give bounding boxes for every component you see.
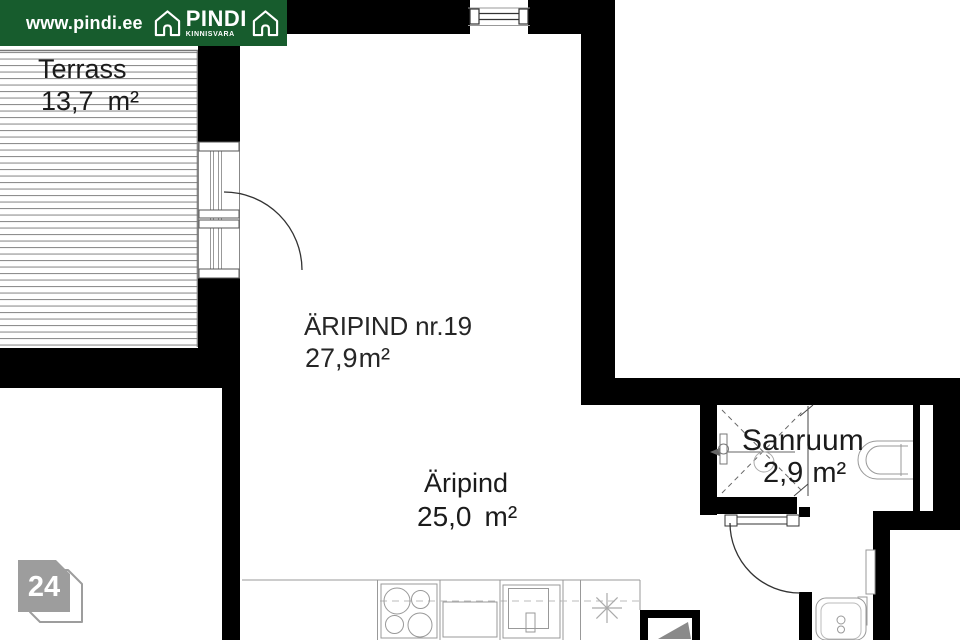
area-unit: m²	[485, 503, 518, 531]
brand-name: PINDI	[186, 8, 247, 30]
bathroom-sink-symbol	[816, 598, 866, 640]
terrace-door	[199, 142, 303, 278]
area-value: 25,0	[417, 503, 472, 531]
kitchen-counter	[242, 580, 640, 640]
page-number-badge: 24	[18, 560, 84, 624]
area-value: 2,9	[763, 459, 803, 488]
area-unit: m²	[108, 88, 139, 115]
ceiling-lamp-symbol	[592, 593, 622, 623]
room-area-unit: 27,9 m²	[305, 345, 390, 372]
room-area-terrass: 13,7 m²	[41, 88, 139, 115]
website-url: www.pindi.ee	[26, 13, 143, 34]
door-swing-arc	[730, 523, 800, 593]
kitchen-sink-symbol	[503, 585, 560, 638]
area-value: 13,7	[41, 88, 94, 115]
house-icon	[251, 8, 280, 38]
bathroom-door	[725, 515, 800, 593]
window-top	[468, 8, 530, 26]
page-number: 24	[18, 571, 70, 604]
brand-subtitle: KINNISVARA	[186, 31, 235, 38]
dishwasher-symbol	[443, 602, 497, 637]
room-label-aripind: Äripind	[424, 470, 508, 497]
room-label-unit: ÄRIPIND nr.19	[304, 313, 472, 339]
toilet-symbol	[858, 441, 913, 479]
shaft-box	[648, 618, 692, 640]
room-area-aripind: 25,0 m²	[417, 503, 517, 531]
floorplan-page: www.pindi.ee PINDI KINNISVARA Terrass 13…	[0, 0, 960, 640]
pindi-logo: PINDI KINNISVARA	[153, 8, 280, 38]
room-area-sanruum: 2,9 m²	[763, 459, 846, 488]
stove-symbol	[381, 584, 437, 638]
brand-text: PINDI KINNISVARA	[186, 8, 247, 38]
area-unit: m²	[812, 459, 846, 488]
area-unit: m²	[359, 345, 390, 372]
area-value: 27,9	[305, 345, 358, 372]
brand-header: www.pindi.ee PINDI KINNISVARA	[0, 0, 287, 46]
room-label-terrass: Terrass	[38, 56, 127, 83]
house-icon	[153, 8, 182, 38]
floorplan-drawing	[0, 0, 960, 640]
room-label-sanruum: Sanruum	[742, 426, 864, 456]
